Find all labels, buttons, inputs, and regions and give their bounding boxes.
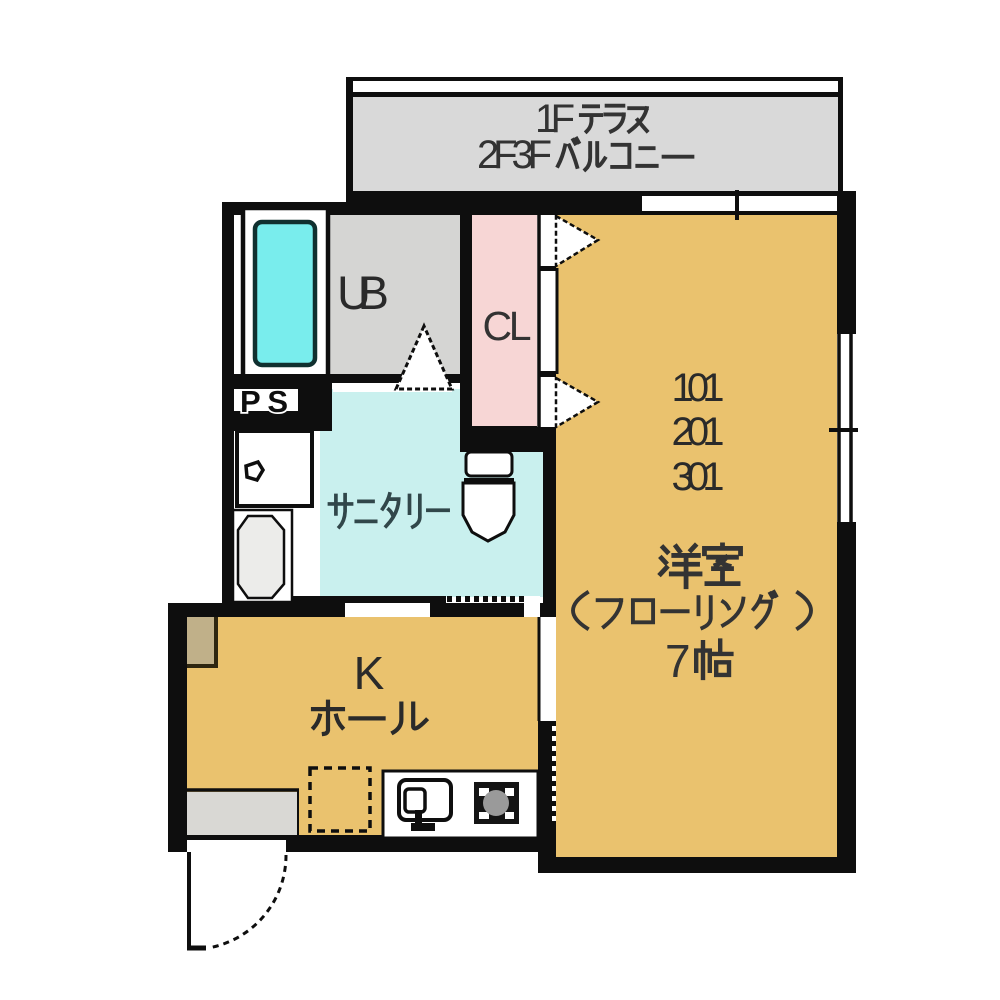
svg-text:301: 301 xyxy=(672,455,725,499)
svg-text:201: 201 xyxy=(672,410,725,454)
svg-text:2F3F: 2F3F xyxy=(477,133,552,177)
svg-text:101: 101 xyxy=(672,366,725,410)
svg-text:CL: CL xyxy=(483,303,532,349)
svg-text:K: K xyxy=(354,647,385,699)
svg-text:UB: UB xyxy=(337,266,389,319)
svg-text:7: 7 xyxy=(665,635,691,687)
